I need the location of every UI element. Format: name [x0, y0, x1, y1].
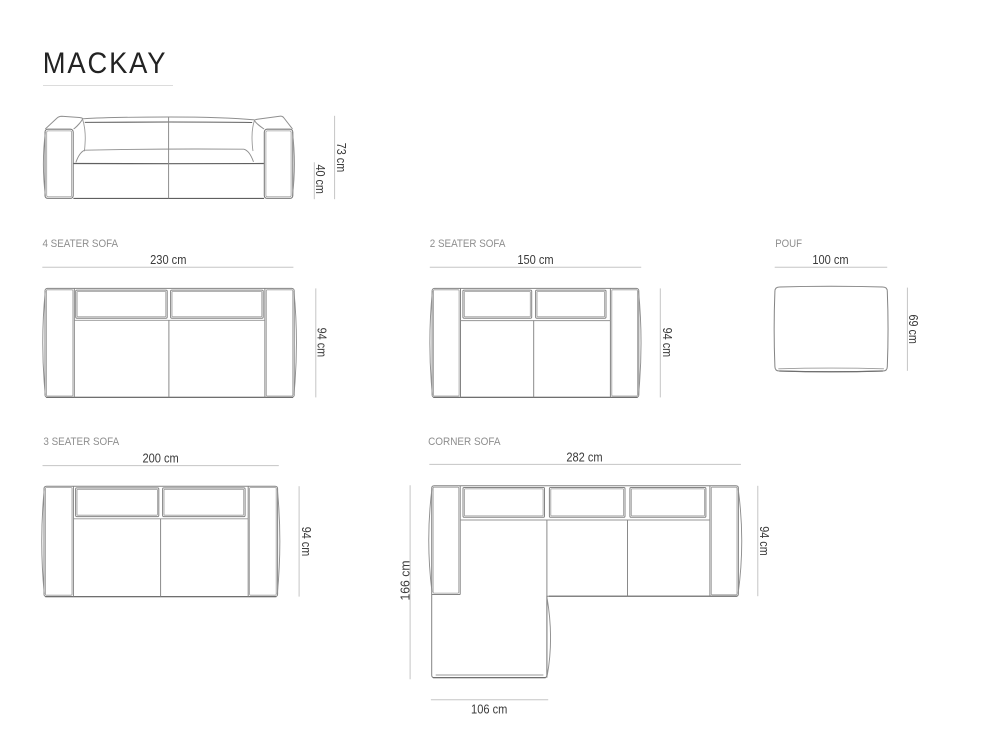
svg-text:200 cm: 200 cm	[142, 452, 178, 466]
svg-text:40 cm: 40 cm	[313, 164, 327, 194]
svg-text:230 cm: 230 cm	[150, 253, 186, 267]
svg-text:3 SEATER SOFA: 3 SEATER SOFA	[43, 436, 119, 448]
svg-text:94 cm: 94 cm	[757, 526, 771, 556]
svg-text:100 cm: 100 cm	[812, 253, 848, 267]
svg-text:106 cm: 106 cm	[471, 703, 507, 717]
svg-text:2 SEATER SOFA: 2 SEATER SOFA	[430, 238, 506, 250]
svg-text:166 cm: 166 cm	[398, 561, 412, 601]
svg-text:MACKAY: MACKAY	[43, 47, 168, 80]
svg-text:94 cm: 94 cm	[660, 328, 674, 358]
svg-text:69 cm: 69 cm	[906, 314, 920, 344]
svg-text:150 cm: 150 cm	[517, 253, 553, 267]
svg-text:4 SEATER SOFA: 4 SEATER SOFA	[43, 238, 119, 250]
svg-text:73 cm: 73 cm	[334, 143, 348, 173]
svg-text:94 cm: 94 cm	[315, 328, 329, 358]
svg-text:CORNER SOFA: CORNER SOFA	[428, 436, 501, 448]
svg-text:POUF: POUF	[775, 238, 802, 250]
svg-text:282 cm: 282 cm	[566, 450, 602, 464]
svg-text:94 cm: 94 cm	[299, 527, 313, 557]
